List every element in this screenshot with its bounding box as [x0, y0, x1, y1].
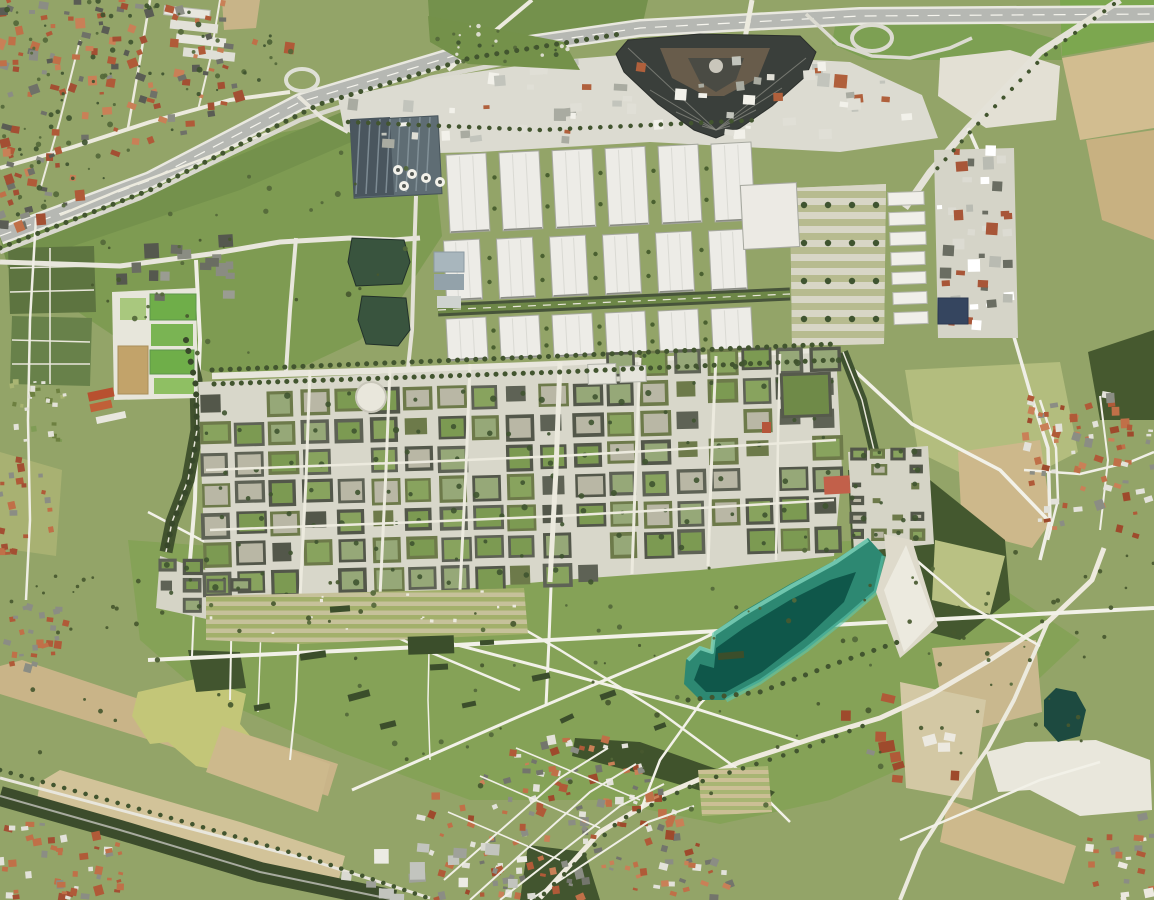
parking-rows	[790, 184, 886, 352]
aerial-photo-stage	[0, 0, 1154, 900]
solar-roof-building	[938, 298, 968, 324]
allotments-bottom	[698, 766, 772, 818]
round-plaza	[356, 382, 386, 412]
fan-building-core	[709, 59, 723, 73]
aerial-photo	[0, 0, 1154, 900]
